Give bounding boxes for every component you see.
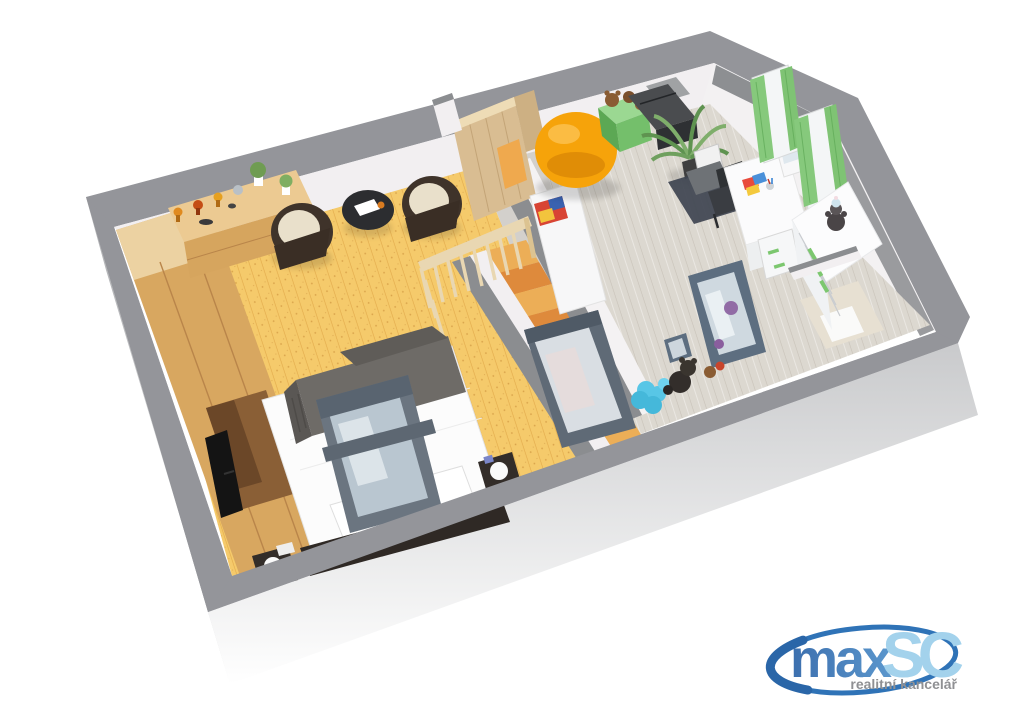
logo: max SC realitní kancelář	[768, 619, 963, 700]
wicker-chair-right	[402, 176, 462, 242]
side-table	[342, 190, 394, 237]
wicker-chair-left	[271, 203, 333, 270]
floorplan-image: max SC realitní kancelář	[0, 0, 1024, 727]
logo-tagline: realitní kancelář	[850, 676, 957, 692]
